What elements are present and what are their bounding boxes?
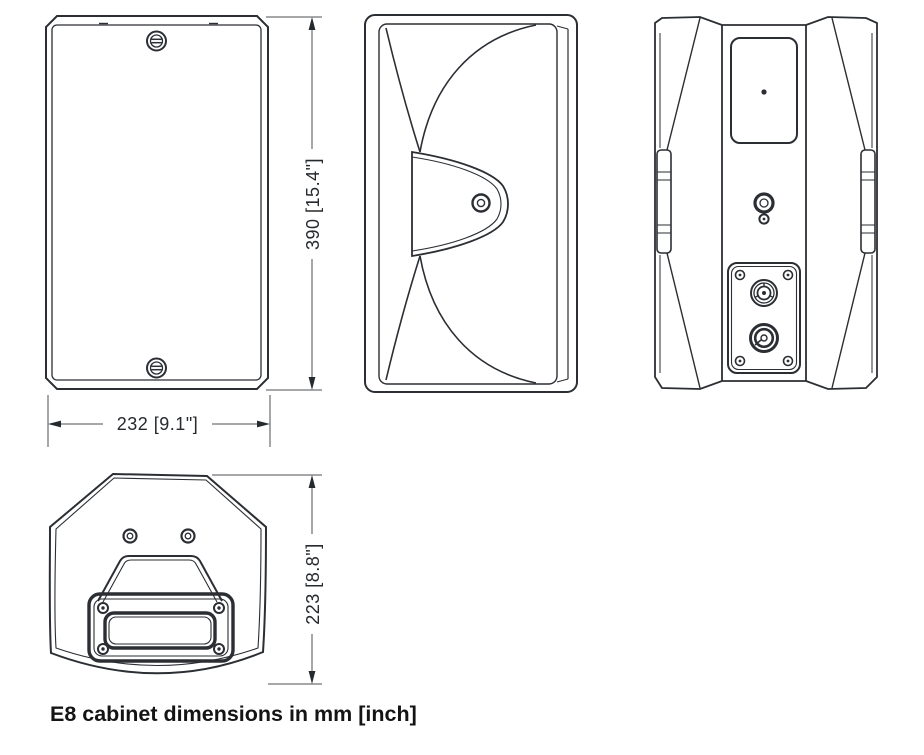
top-hole-right-icon xyxy=(182,530,195,543)
rear-top-plate xyxy=(731,38,797,143)
side-strip-notch-bottom xyxy=(557,379,568,382)
rear-right-diagonal-top xyxy=(832,18,865,150)
side-bottom-wedge-line xyxy=(386,256,420,380)
speakon-connector-top-icon xyxy=(751,280,777,306)
arrow-right-icon xyxy=(257,421,270,428)
rear-right-block xyxy=(806,17,877,389)
rear-right-rail xyxy=(861,150,875,253)
width-dimension: 232 [9.1"] xyxy=(48,395,270,447)
arrow-down-icon xyxy=(309,671,316,684)
rear-left-block xyxy=(655,17,722,389)
height-dimension: 390 [15.4"] xyxy=(266,17,323,390)
rear-view-drawing xyxy=(655,17,877,389)
top-view-drawing xyxy=(50,474,266,673)
side-strip-notch-top xyxy=(557,26,568,29)
side-inner-panel xyxy=(379,24,557,384)
depth-dimension: 223 [8.8"] xyxy=(212,475,323,684)
rear-threaded-insert-icon xyxy=(755,194,773,224)
side-baffle-nose-inner xyxy=(412,157,501,251)
arrow-left-icon xyxy=(48,421,61,428)
rear-left-diagonal-top xyxy=(667,18,700,150)
height-dimension-label: 390 [15.4"] xyxy=(303,158,323,250)
side-view-drawing xyxy=(365,15,577,392)
arrow-up-icon xyxy=(309,475,316,488)
drawing-canvas: 390 [15.4"] 232 [9.1"] xyxy=(0,0,924,755)
handle-slot xyxy=(105,613,215,648)
side-top-curve xyxy=(420,25,536,152)
top-hole-left-icon xyxy=(124,530,137,543)
rear-left-diagonal-bottom xyxy=(667,253,700,388)
front-outer-outline xyxy=(46,16,268,389)
front-view-drawing xyxy=(46,16,268,389)
side-insert-icon xyxy=(473,195,490,212)
rear-left-rail xyxy=(657,150,671,253)
top-inner-outline xyxy=(55,478,261,666)
speakon-connector-bottom-icon xyxy=(751,325,778,352)
side-bottom-curve xyxy=(420,256,536,383)
front-screw-top-icon xyxy=(147,32,166,51)
arrow-down-icon xyxy=(309,377,316,390)
rear-right-diagonal-bottom xyxy=(832,253,865,388)
technical-drawing-page: 390 [15.4"] 232 [9.1"] xyxy=(0,0,924,755)
depth-dimension-label: 223 [8.8"] xyxy=(303,543,323,624)
side-top-wedge-line xyxy=(386,28,420,152)
front-screw-bottom-icon xyxy=(147,359,166,378)
width-dimension-label: 232 [9.1"] xyxy=(117,414,198,434)
arrow-up-icon xyxy=(309,17,316,30)
rear-connector-plate xyxy=(728,263,800,373)
front-grille-frame xyxy=(52,25,261,380)
drawing-caption: E8 cabinet dimensions in mm [inch] xyxy=(50,702,417,726)
